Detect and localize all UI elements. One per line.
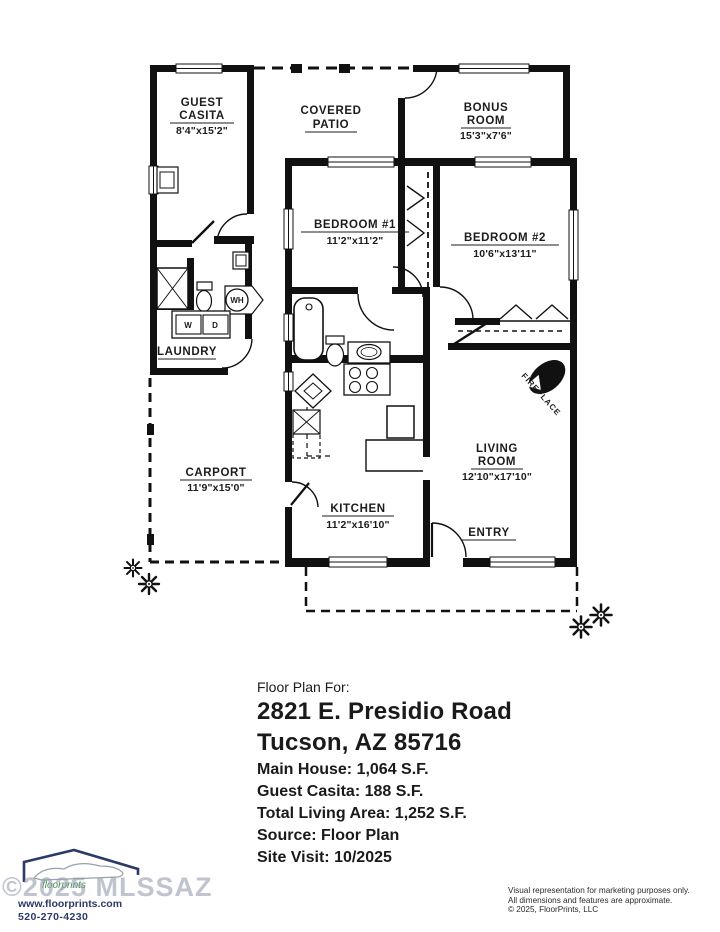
label-carport: CARPORT 11'9"x15'0" (180, 467, 252, 494)
disclaimer-line2: All dimensions and features are approxim… (508, 896, 690, 906)
info-heading: Floor Plan For: (257, 680, 512, 694)
bathroom-toilet (326, 336, 344, 366)
svg-text:15'3"x7'6": 15'3"x7'6" (460, 130, 512, 142)
label-kitchen: KITCHEN 11'2"x16'10" (322, 503, 394, 531)
svg-text:ENTRY: ENTRY (468, 527, 510, 539)
plant-icon (125, 560, 142, 577)
kitchen-sink (295, 374, 331, 408)
svg-text:COVERED: COVERED (300, 105, 361, 117)
info-block: Floor Plan For: 2821 E. Presidio Road Tu… (257, 680, 512, 872)
plant-icon (591, 605, 612, 626)
label-bonus-room: BONUS ROOM 15'3"x7'6" (460, 102, 512, 142)
svg-text:BEDROOM #2: BEDROOM #2 (464, 232, 546, 244)
copyright-line: © 2025, FloorPrints, LLC (508, 905, 690, 915)
label-bedroom-1: BEDROOM #1 11'2"x11'2" (301, 219, 409, 247)
svg-text:LAUNDRY: LAUNDRY (157, 346, 217, 358)
svg-text:GUEST: GUEST (181, 97, 224, 109)
svg-text:CARPORT: CARPORT (185, 467, 246, 479)
bathroom-door-arc (358, 294, 394, 330)
bifold-door (536, 305, 568, 319)
guest-casita-sf: Guest Casita: 188 S.F. (257, 784, 512, 800)
svg-text:11'9"x15'0": 11'9"x15'0" (187, 482, 244, 494)
window-bathroom-west (284, 314, 293, 341)
bifold-door (500, 305, 532, 319)
svg-text:12'10"x17'10": 12'10"x17'10" (462, 471, 532, 483)
main-house-sf: Main House: 1,064 S.F. (257, 762, 512, 778)
label-entry: ENTRY (462, 527, 516, 540)
svg-text:PATIO: PATIO (313, 119, 349, 131)
label-guest-casita: GUEST CASITA 8'4"x15'2" (170, 97, 234, 137)
pantry (293, 410, 320, 434)
kitchen-counter (366, 440, 423, 471)
label-laundry: LAUNDRY (157, 346, 217, 359)
carport-post (147, 424, 154, 435)
window-kitchen-south (329, 557, 387, 567)
phone-text: 520-270-4230 (18, 911, 88, 923)
fixtures: WH W D (157, 167, 572, 471)
closet-angled-door-leaf (451, 323, 487, 346)
carport-door-arc (292, 482, 318, 507)
svg-text:BONUS: BONUS (464, 102, 509, 114)
stove (344, 364, 390, 395)
bifold-door (407, 186, 424, 210)
water-heater-label: WH (230, 296, 244, 305)
walkway-outline (306, 567, 577, 611)
window-kitchen-west (284, 372, 293, 391)
patio-post (339, 64, 350, 73)
landscape-plants (125, 560, 612, 638)
washer-label: W (184, 321, 192, 330)
carport-post (147, 534, 154, 545)
bedroom2-door-arc (440, 287, 473, 320)
svg-text:CASITA: CASITA (179, 110, 225, 122)
window-bedroom1-west (284, 209, 293, 249)
plant-icon (571, 617, 592, 638)
label-bedroom-2: BEDROOM #2 10'6"x13'11" (451, 232, 559, 260)
carport-door-leaf (291, 483, 309, 505)
bonus-room-door-arc (405, 68, 437, 98)
svg-text:ROOM: ROOM (467, 115, 505, 127)
total-living-sf: Total Living Area: 1,252 S.F. (257, 806, 512, 822)
label-living-room: LIVING ROOM 12'10"x17'10" (462, 443, 532, 483)
water-heater: WH (225, 286, 263, 314)
entry-door-arc (432, 523, 466, 557)
site-visit: Site Visit: 10/2025 (257, 850, 512, 866)
address-line2: Tucson, AZ 85716 (257, 731, 512, 755)
svg-text:LIVING: LIVING (476, 443, 518, 455)
window-bedroom1-north (328, 157, 394, 167)
svg-text:8'4"x15'2": 8'4"x15'2" (176, 125, 228, 137)
bathtub (294, 298, 323, 360)
floorplan-page: { "plan": { "rooms": [ {"id":"guest-casi… (0, 0, 720, 932)
source: Source: Floor Plan (257, 828, 512, 844)
casita-vanity-sink (157, 167, 178, 193)
mls-watermark: ©2025 MLSSAZ (2, 872, 212, 903)
plant-icon (139, 574, 159, 594)
svg-text:BEDROOM #1: BEDROOM #1 (314, 219, 396, 231)
address-line1: 2821 E. Presidio Road (257, 700, 512, 724)
label-covered-patio: COVERED PATIO (300, 105, 361, 132)
disclaimer-line1: Visual representation for marketing purp… (508, 886, 690, 896)
svg-text:10'6"x13'11": 10'6"x13'11" (473, 248, 537, 260)
window-casita-north (176, 64, 222, 73)
patio-post (291, 64, 302, 73)
casita-interior-door-leaf (192, 221, 214, 243)
shower (157, 268, 188, 309)
svg-text:11'2"x16'10": 11'2"x16'10" (326, 519, 390, 531)
medicine-cabinet (233, 252, 249, 269)
svg-text:ROOM: ROOM (478, 456, 516, 468)
dryer-label: D (212, 321, 218, 330)
bifold-door (407, 220, 424, 246)
window-bedroom2-north (475, 157, 531, 167)
svg-text:KITCHEN: KITCHEN (330, 503, 385, 515)
window-bedroom2-east (569, 210, 578, 280)
window-entry-south (490, 557, 555, 567)
disclaimer-block: Visual representation for marketing purp… (508, 886, 690, 915)
refrigerator (387, 406, 414, 438)
casita-toilet (197, 282, 213, 312)
washer-dryer: W D (172, 311, 230, 338)
laundry-door-arc (222, 339, 252, 368)
bathroom-vanity (348, 342, 390, 363)
window-bonus-north (459, 64, 529, 73)
svg-text:11'2"x11'2": 11'2"x11'2" (327, 235, 384, 247)
